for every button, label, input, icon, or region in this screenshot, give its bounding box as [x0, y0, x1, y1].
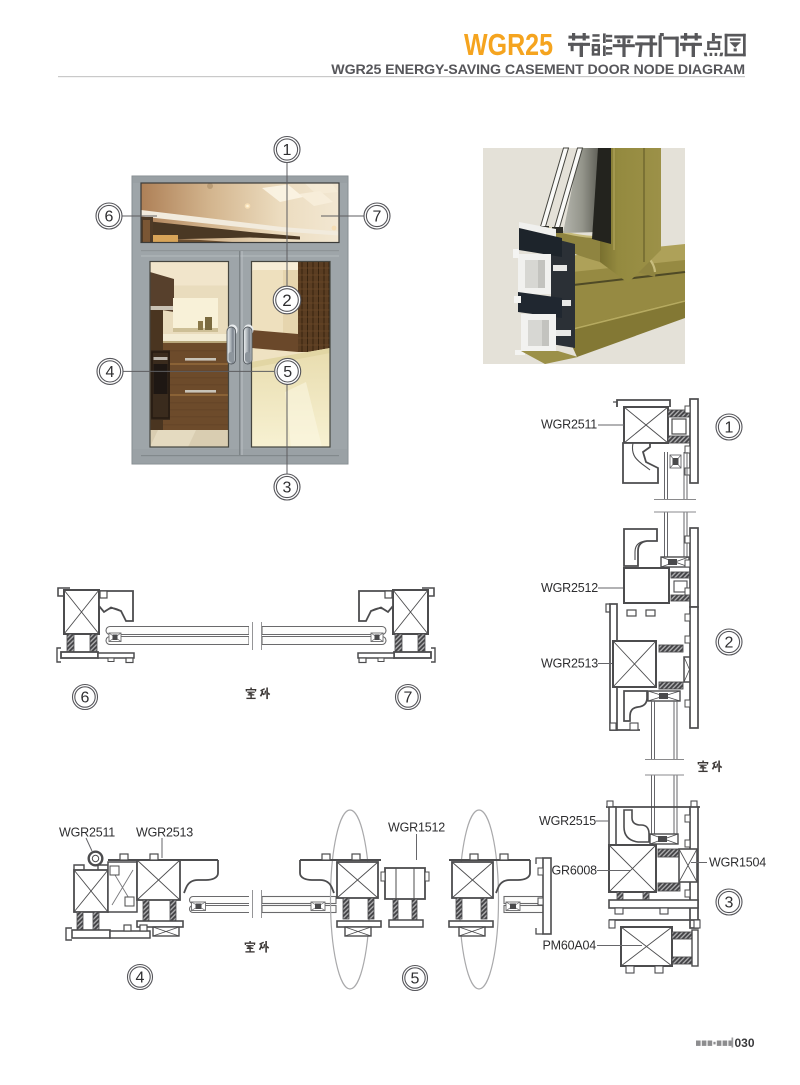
svg-text:5: 5 [283, 364, 292, 381]
svg-text:1: 1 [725, 420, 734, 437]
svg-text:3: 3 [283, 480, 292, 497]
svg-text:5: 5 [411, 971, 420, 988]
svg-text:GR6008: GR6008 [552, 864, 598, 878]
svg-text:7: 7 [373, 209, 382, 226]
svg-text:6: 6 [81, 690, 90, 707]
svg-text:4: 4 [136, 970, 145, 987]
svg-text:WGR2511: WGR2511 [59, 826, 115, 840]
svg-text:6: 6 [105, 209, 114, 226]
svg-text:4: 4 [106, 364, 115, 381]
svg-text:WGR1512: WGR1512 [388, 821, 445, 835]
svg-text:PM60A04: PM60A04 [543, 939, 597, 953]
svg-text:030: 030 [735, 1036, 755, 1050]
svg-text:WGR2513: WGR2513 [136, 826, 193, 840]
svg-text:WGR25 ENERGY-SAVING CASEMENT D: WGR25 ENERGY-SAVING CASEMENT DOOR NODE D… [331, 62, 745, 78]
svg-text:2: 2 [725, 635, 734, 652]
svg-text:2: 2 [282, 291, 291, 310]
svg-text:7: 7 [404, 690, 413, 707]
svg-text:WGR2512: WGR2512 [541, 581, 598, 595]
svg-text:1: 1 [283, 142, 292, 159]
svg-text:WGR2511: WGR2511 [541, 418, 597, 432]
svg-text:WGR1504: WGR1504 [709, 856, 766, 870]
svg-text:3: 3 [725, 895, 734, 912]
svg-text:WGR25: WGR25 [464, 27, 553, 62]
svg-text:WGR2513: WGR2513 [541, 657, 598, 671]
svg-text:WGR2515: WGR2515 [539, 814, 596, 828]
